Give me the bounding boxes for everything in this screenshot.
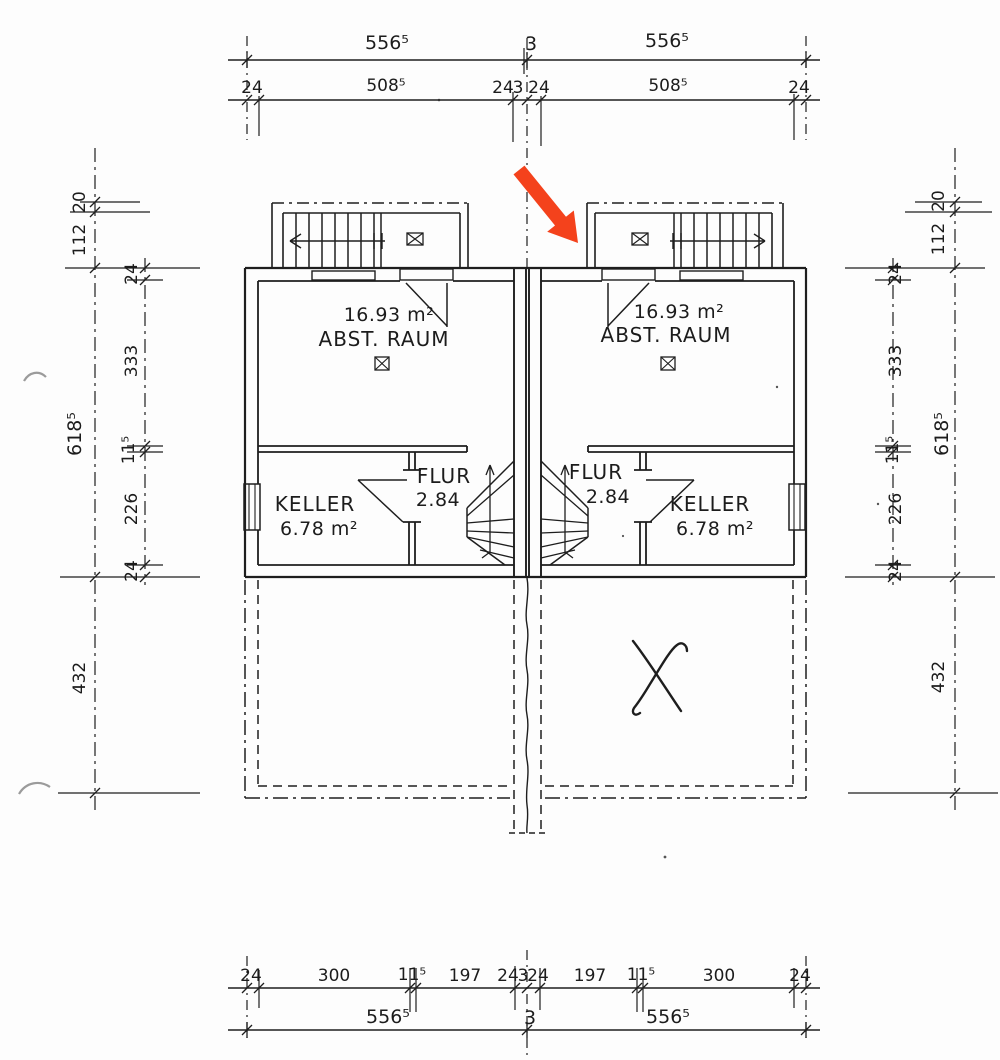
dim-left-inner-2: 11⁵ xyxy=(119,436,139,464)
dim-top-detail-3: 3 xyxy=(513,78,524,98)
dim-top-overall-0: 556⁵ xyxy=(365,32,409,54)
right-cellar-window xyxy=(789,484,805,530)
dim-bottom-detail-8: 11⁵ xyxy=(627,965,655,985)
floor-plan-drawing: 556⁵ 3 556⁵ 24 508⁵ 24 3 24 508⁵ 24 24 3… xyxy=(0,0,1000,1060)
dim-left-outer-0: 20 xyxy=(70,191,90,213)
dim-left-outer-1: 112 xyxy=(70,224,90,256)
dim-right-outer-2: 618⁵ xyxy=(931,412,953,456)
dim-right-inner-2: 11⁵ xyxy=(883,436,903,464)
dim-bottom-detail-9: 300 xyxy=(703,966,735,986)
stair-direction-arrow xyxy=(290,233,385,249)
dim-left-outer-2: 618⁵ xyxy=(64,412,86,456)
right-flur-partition xyxy=(634,452,652,565)
party-wall-extension xyxy=(514,580,541,833)
left-storage-name-label: ABST. RAUM xyxy=(319,327,450,351)
right-hall-name-label: FLUR xyxy=(569,460,623,484)
dim-left-inner-1: 333 xyxy=(122,345,142,377)
dim-bottom-detail-4: 24 xyxy=(497,966,519,986)
dim-right-inner-3: 226 xyxy=(886,493,906,525)
foundation-outline xyxy=(245,578,806,833)
right-storage-area-label: 16.93 m² xyxy=(634,301,725,323)
dim-bottom-detail-6: 24 xyxy=(527,966,549,986)
dim-bottom-overall-0: 556⁵ xyxy=(366,1006,410,1028)
dim-bottom-overall-1: 3 xyxy=(524,1007,536,1029)
dim-left-inner-4: 24 xyxy=(122,560,142,582)
floor-drain-icon xyxy=(375,357,389,370)
dim-right-inner-1: 333 xyxy=(886,345,906,377)
left-cellar-area-label: 6.78 m² xyxy=(280,518,358,540)
speck xyxy=(776,386,778,388)
dim-top-detail-4: 24 xyxy=(528,78,550,98)
red-arrow-annotation-icon xyxy=(514,166,579,243)
dim-left-inner-3: 226 xyxy=(122,493,142,525)
dim-right-inner-4: 24 xyxy=(886,560,906,582)
dim-top-overall-2: 556⁵ xyxy=(645,30,689,52)
stair-direction-arrow xyxy=(670,233,765,249)
dim-left-outer-3: 432 xyxy=(70,662,90,694)
dim-bottom-detail-3: 197 xyxy=(449,966,481,986)
right-cellar-area-label: 6.78 m² xyxy=(676,518,754,540)
speck xyxy=(664,856,667,859)
entrance-door-threshold xyxy=(602,269,655,280)
x-mark xyxy=(633,641,687,715)
right-hall-area-label: 2.84 xyxy=(586,486,630,508)
dim-top-overall-1: 3 xyxy=(525,33,537,55)
pencil-mark xyxy=(19,783,50,794)
dim-bottom-overall-2: 556⁵ xyxy=(646,1006,690,1028)
left-cellar-window xyxy=(244,484,260,530)
dim-top-detail-5: 508⁵ xyxy=(648,76,687,96)
dim-top-detail-0: 24 xyxy=(241,78,263,98)
stair-grating xyxy=(312,271,375,280)
party-wall-center-line xyxy=(526,578,528,833)
floor-drain-icon xyxy=(632,233,648,245)
dim-right-outer-3: 432 xyxy=(929,661,949,693)
left-winder-stair xyxy=(467,461,514,565)
bottom-dimensions: 24 300 11⁵ 197 24 3 24 197 11⁵ 300 24 55… xyxy=(228,950,820,1058)
scanned-floor-plan-page: 556⁵ 3 556⁵ 24 508⁵ 24 3 24 508⁵ 24 24 3… xyxy=(0,0,1000,1060)
dim-top-detail-1: 508⁵ xyxy=(366,76,405,96)
dim-bottom-detail-2: 11⁵ xyxy=(398,965,426,985)
speck xyxy=(622,535,624,537)
party-wall xyxy=(514,268,541,577)
speck xyxy=(877,503,879,505)
top-dimensions: 556⁵ 3 556⁵ 24 508⁵ 24 3 24 508⁵ 24 xyxy=(228,30,820,268)
dim-bottom-detail-1: 300 xyxy=(318,966,350,986)
walk-line-arrow xyxy=(482,465,494,558)
dim-right-inner-0: 24 xyxy=(886,263,906,285)
dim-bottom-detail-0: 24 xyxy=(240,966,262,986)
left-dimension-chains: 20 112 618⁵ 432 24 333 11⁵ 226 24 xyxy=(58,148,200,810)
dim-left-inner-0: 24 xyxy=(122,263,142,285)
right-storage-name-label: ABST. RAUM xyxy=(601,323,732,347)
left-storage-area-label: 16.93 m² xyxy=(344,304,435,326)
dim-right-outer-1: 112 xyxy=(929,223,949,255)
floor-drain-icon xyxy=(661,357,675,370)
dim-top-detail-6: 24 xyxy=(788,78,810,98)
left-cellar-name-label: KELLER xyxy=(275,492,356,516)
floor-drain-icon xyxy=(407,233,423,245)
left-hall-name-label: FLUR xyxy=(417,464,471,488)
dim-bottom-detail-10: 24 xyxy=(789,966,811,986)
dim-bottom-detail-7: 197 xyxy=(574,966,606,986)
pencil-mark xyxy=(24,373,46,381)
right-cellar-name-label: KELLER xyxy=(670,492,751,516)
stair-grating xyxy=(680,271,743,280)
left-cellar-door-swing xyxy=(358,480,407,522)
dim-right-outer-0: 20 xyxy=(929,190,949,212)
right-dimension-chains: 20 112 618⁵ 432 24 333 11⁵ 226 24 xyxy=(845,148,998,810)
left-hall-area-label: 2.84 xyxy=(416,489,460,511)
speck xyxy=(438,99,441,102)
dim-top-detail-2: 24 xyxy=(492,78,514,98)
entrance-door-threshold xyxy=(400,269,453,280)
